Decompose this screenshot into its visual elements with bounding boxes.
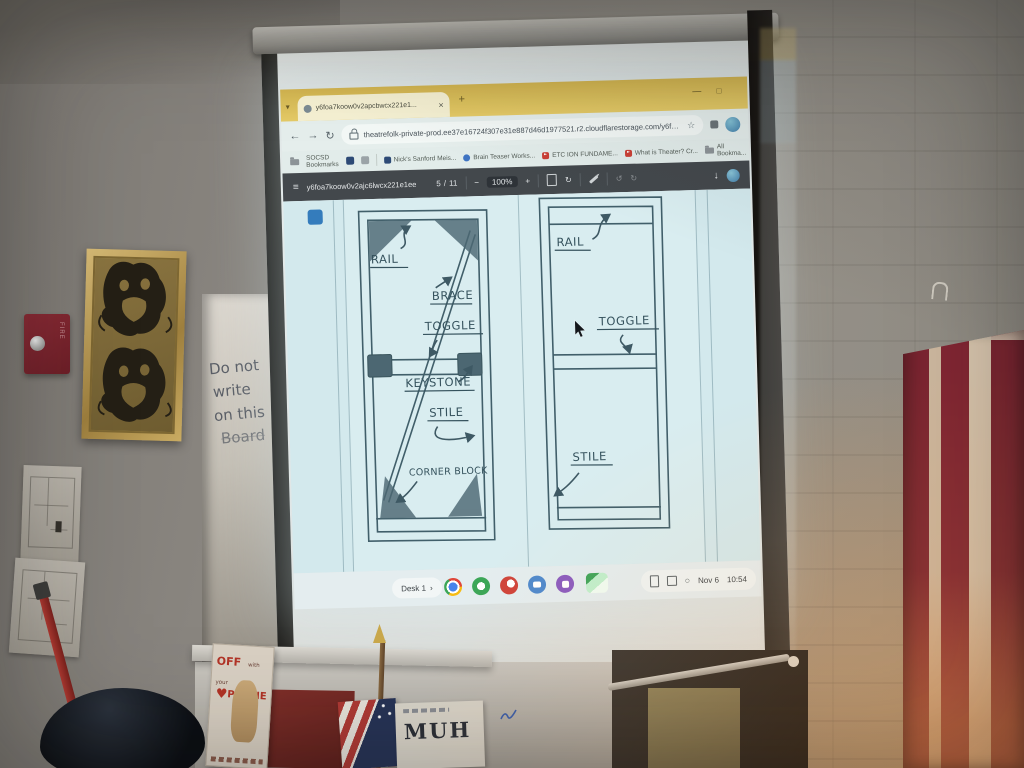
reload-icon[interactable]: ↻: [325, 129, 335, 142]
phone-poster: OFF with your PHONE ♥: [205, 643, 274, 768]
pdf-menu-icon[interactable]: ≡: [293, 182, 299, 193]
divider: [580, 173, 581, 186]
window-icon: [649, 575, 658, 587]
label-toggle-right: TOGGLE: [598, 313, 650, 328]
record-icon: ○: [684, 575, 690, 585]
bookmark-item[interactable]: Brain Teaser Works...: [463, 152, 535, 161]
american-flag: [338, 698, 401, 768]
rod-end-cap: [788, 656, 799, 667]
masks-artwork: [89, 256, 180, 434]
profile-avatar[interactable]: [725, 116, 740, 131]
pdf-page-view[interactable]: RAIL BRACE TOGGLE KEYSTONE STILE CORNER …: [283, 189, 760, 574]
bookmarks-folder-label[interactable]: SOCSD Bookmarks: [306, 154, 339, 169]
blue-app-icon[interactable]: [528, 575, 546, 593]
divider: [375, 154, 376, 166]
page-current[interactable]: 5: [436, 179, 441, 188]
forward-icon[interactable]: →: [307, 130, 318, 142]
extension-icon[interactable]: [710, 120, 718, 128]
divider: [607, 172, 608, 185]
divider: [538, 174, 539, 187]
shelf-date: Nov 6: [698, 575, 719, 585]
new-tab-button[interactable]: +: [458, 93, 465, 105]
bookmark-label: ETC ION FUNDAME...: [552, 150, 618, 159]
desk-label: Desk 1: [401, 583, 426, 593]
bookmark-label: What is Theater? Cr...: [635, 147, 698, 156]
projection-ghost-edge: [760, 28, 796, 668]
bookmark-favicon: [463, 154, 470, 161]
sign-scribble: [403, 708, 449, 714]
poster-footer-scribble: [211, 756, 263, 764]
bookmarks-folder-icon: [290, 159, 299, 165]
floorplan-sketch: [28, 477, 76, 549]
tab-title: y6foa7koow0v2apcbwcx221e1...: [316, 101, 435, 111]
page-indicator: 5 / 11: [436, 178, 457, 188]
page-divider: /: [444, 178, 446, 187]
purple-app-icon[interactable]: [556, 575, 574, 593]
fire-alarm: FIRE: [24, 314, 70, 374]
rotate-icon[interactable]: ↻: [565, 175, 572, 184]
theater-masks-frame: [81, 249, 186, 442]
zoom-out-button[interactable]: −: [474, 178, 479, 187]
tab-close-icon[interactable]: ×: [438, 100, 444, 110]
sign-text: MUH: [403, 717, 476, 744]
bookmark-label: Nick's Sanford Meis...: [394, 154, 457, 163]
label-rail-right: RAIL: [556, 234, 584, 249]
maximize-button[interactable]: □: [716, 86, 721, 95]
projector-screen: ▾ y6foa7koow0v2apcbwcx221e1... × + — □ ←…: [248, 7, 792, 729]
desk-switcher[interactable]: Desk 1 ›: [392, 577, 442, 598]
pinned-app-icon[interactable]: [361, 156, 369, 164]
label-brace: BRACE: [432, 288, 474, 303]
label-keystone: KEYSTONE: [405, 374, 471, 390]
divider: [465, 176, 466, 189]
red-app-icon[interactable]: [500, 576, 518, 594]
label-corner-block: CORNER BLOCK: [409, 465, 489, 478]
blue-scribble: [500, 708, 518, 727]
pdf-sidebar-thumbnail-button[interactable]: [308, 209, 323, 224]
fire-alarm-label: FIRE: [58, 322, 64, 340]
url-text: theatrefolk-private-prod.ee37e16724f307e…: [364, 121, 683, 139]
bookmark-star-icon[interactable]: ☆: [687, 120, 695, 131]
wall-paper-map-1: [20, 465, 81, 562]
bookmark-item[interactable]: What is Theater? Cr...: [625, 147, 698, 156]
comedy-tragedy-masks-icon: [91, 258, 178, 428]
bookmark-item[interactable]: ETC ION FUNDAME...: [542, 150, 618, 159]
pdf-filename: y6foa7koow0v2ajc6lwcx221e1ee: [307, 179, 417, 191]
flag-stand-sign: MUH: [395, 700, 485, 768]
account-icon[interactable]: [727, 168, 740, 181]
poster-word-off: OFF: [216, 655, 241, 669]
note-line: Do not: [208, 354, 262, 382]
minimize-button[interactable]: —: [692, 86, 701, 96]
chrome-icon[interactable]: [444, 578, 462, 596]
youtube-favicon: [542, 152, 549, 159]
all-bookmarks-button[interactable]: All Bookma...: [705, 143, 747, 158]
projected-browser: ▾ y6foa7koow0v2apcbwcx221e1... × + — □ ←…: [280, 77, 761, 610]
page-total: 11: [449, 178, 458, 187]
download-icon[interactable]: ↓: [714, 170, 719, 181]
lock-icon: [350, 132, 359, 139]
browser-tab[interactable]: y6foa7koow0v2apcbwcx221e1... ×: [297, 92, 450, 121]
fit-page-icon[interactable]: [547, 174, 557, 186]
tab-search-chevron-icon[interactable]: ▾: [285, 102, 289, 111]
poster-figure: [230, 680, 260, 743]
flat-construction-diagram: RAIL BRACE TOGGLE KEYSTONE STILE CORNER …: [283, 189, 760, 574]
label-rail-left: RAIL: [371, 252, 399, 267]
redo-icon[interactable]: ↻: [630, 173, 637, 182]
map-marker: [55, 521, 61, 532]
chevron-right-icon: ›: [430, 583, 433, 592]
bookmark-label: Brain Teaser Works...: [473, 152, 535, 161]
status-tray[interactable]: ○ Nov 6 10:54: [640, 567, 756, 592]
files-app-icon[interactable]: [586, 573, 609, 594]
shelf-time: 10:54: [727, 574, 747, 584]
screen-cloth: ▾ y6foa7koow0v2apcbwcx221e1... × + — □ ←…: [261, 40, 791, 721]
bookmark-favicon: [384, 156, 391, 163]
alarm-strobe: [30, 336, 45, 351]
wall-hook: [931, 281, 949, 301]
vertical-flag-curtain: [903, 330, 1024, 768]
green-app-icon[interactable]: [472, 577, 490, 595]
youtube-favicon: [625, 149, 632, 156]
bookmark-item[interactable]: Nick's Sanford Meis...: [384, 154, 457, 163]
folder-icon: [705, 148, 714, 154]
window-icon: [666, 576, 676, 586]
tab-favicon: [304, 104, 312, 112]
classroom-photo: FIRE Do not write on this Board: [0, 0, 1024, 768]
cabinet-panel: [648, 688, 740, 768]
back-icon[interactable]: ←: [289, 130, 300, 142]
all-bookmarks-label: All Bookma...: [717, 143, 747, 158]
pinned-app-icon[interactable]: [346, 157, 354, 165]
label-stile-right: STILE: [572, 449, 607, 464]
label-toggle-left: TOGGLE: [424, 318, 476, 333]
annotate-pen-icon[interactable]: [589, 174, 598, 183]
heart-icon: ♥: [215, 687, 228, 703]
zoom-level[interactable]: 100%: [487, 176, 518, 188]
zoom-in-button[interactable]: +: [525, 176, 530, 185]
undo-icon[interactable]: ↺: [616, 174, 623, 183]
label-stile-left: STILE: [429, 405, 464, 420]
